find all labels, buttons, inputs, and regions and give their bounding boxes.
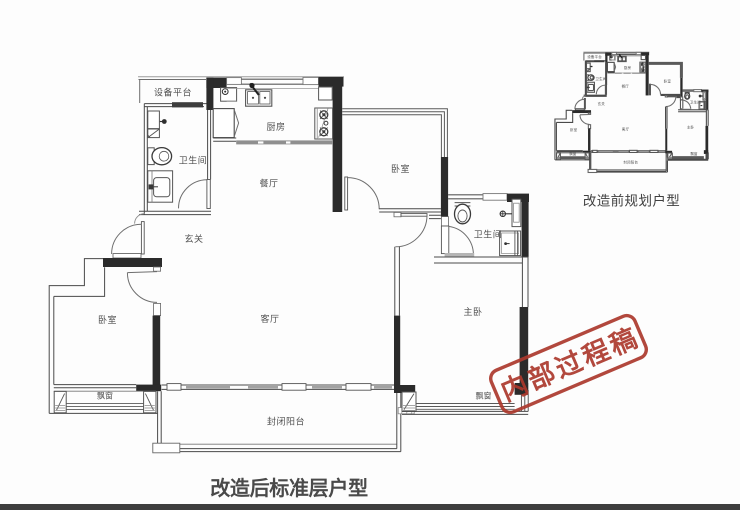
svg-text:卧室: 卧室 <box>664 79 672 84</box>
svg-text:主卧: 主卧 <box>463 306 482 317</box>
svg-text:设备平台: 设备平台 <box>154 87 192 98</box>
svg-text:客厅: 客厅 <box>622 127 630 132</box>
svg-text:卧室: 卧室 <box>391 163 410 174</box>
svg-text:餐厅: 餐厅 <box>259 178 278 189</box>
svg-text:玄关: 玄关 <box>184 233 203 244</box>
svg-text:餐厅: 餐厅 <box>622 83 630 88</box>
svg-text:飘窗: 飘窗 <box>476 391 492 401</box>
svg-text:玄关: 玄关 <box>598 101 606 106</box>
svg-text:卧室: 卧室 <box>570 127 578 132</box>
svg-text:飘窗: 飘窗 <box>97 391 113 401</box>
svg-text:卫生间: 卫生间 <box>474 229 503 240</box>
svg-text:改造前规划户型: 改造前规划户型 <box>583 193 680 209</box>
svg-text:厨房: 厨房 <box>624 65 632 70</box>
svg-text:厨房: 厨房 <box>266 121 285 132</box>
svg-text:卫生间: 卫生间 <box>179 155 208 166</box>
svg-text:卫生间: 卫生间 <box>595 76 606 81</box>
svg-text:封闭阳台: 封闭阳台 <box>623 159 638 164</box>
svg-text:改造后标准层户型: 改造后标准层户型 <box>210 476 368 500</box>
svg-text:客厅: 客厅 <box>260 313 279 324</box>
svg-text:卫生间: 卫生间 <box>690 100 701 105</box>
svg-text:卧室: 卧室 <box>98 314 117 325</box>
svg-text:设备平台: 设备平台 <box>587 54 602 59</box>
svg-text:飘窗: 飘窗 <box>569 151 577 156</box>
svg-text:封闭阳台: 封闭阳台 <box>267 416 305 427</box>
svg-text:飘窗: 飘窗 <box>690 151 698 156</box>
svg-text:主卧: 主卧 <box>687 124 695 129</box>
